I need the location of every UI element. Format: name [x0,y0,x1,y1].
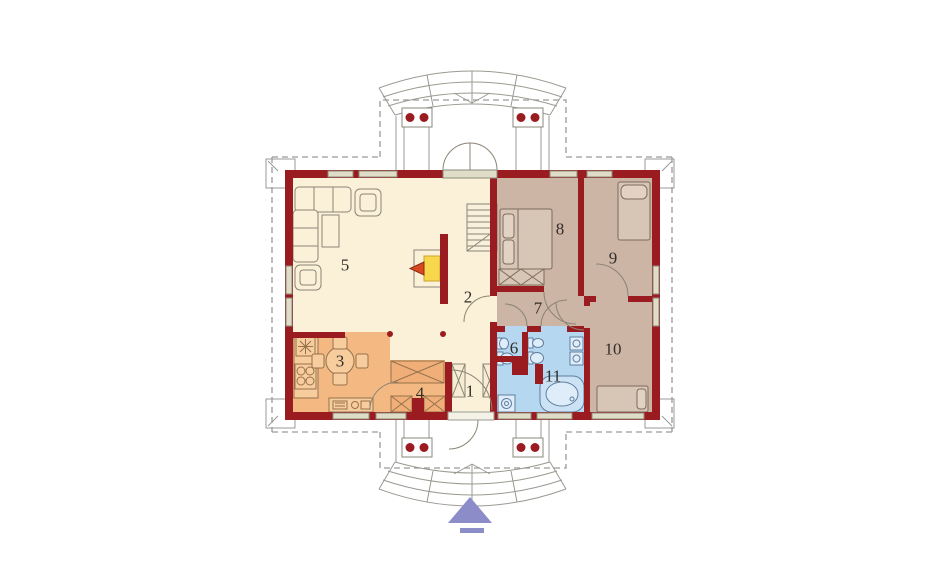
floor-plan-page: 1 2 3 4 5 6 7 8 9 10 11 [0,0,940,587]
bed-room10 [597,386,648,412]
column-dot [387,331,393,337]
chair [356,354,368,368]
bed-room9 [618,182,650,240]
wall-right [652,170,660,420]
chimney [440,234,448,304]
terrace-french-door [443,143,470,170]
chair [333,373,347,385]
porch-column-dots [406,443,540,452]
wardrobe-room8 [499,269,544,285]
column-dot [440,331,446,337]
wall-left [285,170,293,420]
chair [312,354,324,368]
terrace-column-dots [406,113,540,122]
vanity [570,352,583,365]
dining-table [326,347,354,375]
floor-plan-drawing [0,0,940,587]
entrance-door-sill [448,412,494,420]
terrace-top [379,71,566,170]
entrance-arrow-icon [448,497,492,533]
vanity [570,337,583,350]
coffee-table [322,215,339,247]
washing-machine [498,395,515,412]
fireplace [410,250,442,287]
terrace-french-door [470,143,497,170]
chair [333,337,347,349]
terrace-door-sill [443,170,497,178]
bed-room8 [499,209,552,285]
door-entrance-outer [449,420,478,449]
